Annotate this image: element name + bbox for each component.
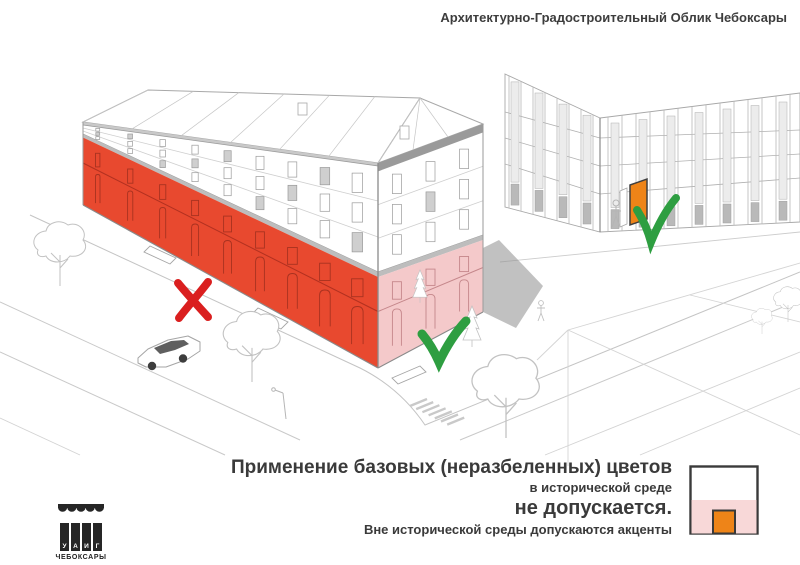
- entrance-door-white: [620, 188, 627, 227]
- tree: [34, 222, 86, 286]
- caption-line-4: Вне исторической среды допускаются акцен…: [231, 521, 672, 538]
- street-lamp: [272, 388, 286, 419]
- caption-line-3: не допускается.: [231, 496, 672, 521]
- building-shadow: [483, 240, 543, 328]
- tree: [223, 311, 280, 382]
- page-header-title: Архитектурно-Градостроительный Облик Чеб…: [440, 10, 787, 25]
- car: [138, 336, 200, 370]
- logo-bars: У А И Г: [55, 523, 107, 551]
- legend-accent-door: [713, 511, 735, 534]
- document-page: Архитектурно-Градостроительный Облик Чеб…: [0, 0, 800, 565]
- logo-letter: У: [62, 543, 66, 550]
- tree: [472, 355, 539, 438]
- logo-bar: И: [82, 523, 91, 551]
- x-mark: [178, 282, 208, 318]
- logo-bar: Г: [93, 523, 102, 551]
- logo-bar: А: [71, 523, 80, 551]
- logo-letter: Г: [96, 543, 100, 550]
- caption-block: Применение базовых (неразбеленных) цвето…: [231, 456, 672, 538]
- caption-line-2: в исторической среде: [231, 479, 672, 496]
- wireframe-building: [537, 263, 800, 466]
- pedestrian: [537, 301, 545, 321]
- modern-building: [505, 74, 800, 232]
- awning-icon: [58, 504, 104, 515]
- chimney: [298, 103, 307, 115]
- bush: [752, 308, 773, 334]
- chimney: [400, 126, 409, 139]
- logo-bar: У: [60, 523, 69, 551]
- legend-box: [689, 465, 759, 535]
- caption-line-1: Применение базовых (неразбеленных) цвето…: [231, 456, 672, 479]
- logo-letter: И: [84, 543, 89, 550]
- logo-city-label: ЧЕБОКСАРЫ: [55, 554, 107, 561]
- uaig-logo: У А И Г ЧЕБОКСАРЫ: [55, 502, 107, 561]
- logo-letter: А: [73, 543, 78, 550]
